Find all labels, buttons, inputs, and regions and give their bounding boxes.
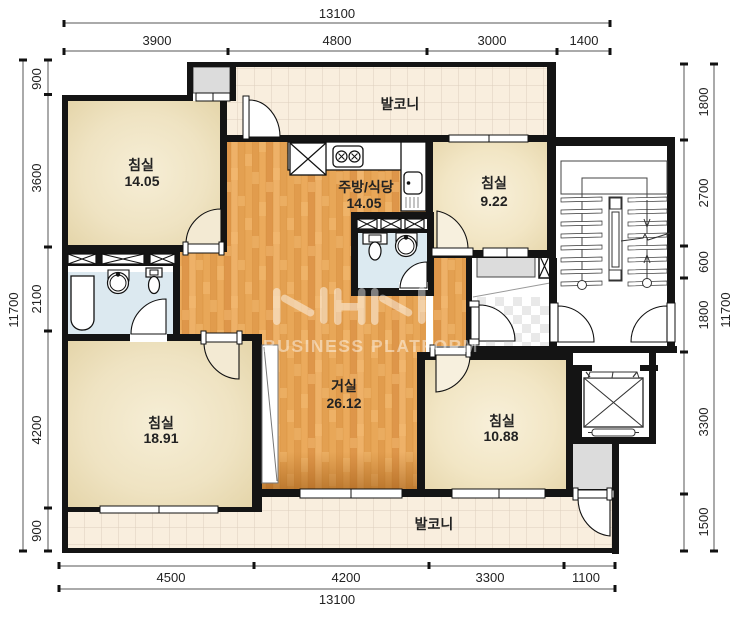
svg-text:침실: 침실 [481,175,507,191]
svg-text:14.05: 14.05 [346,195,381,211]
svg-text:침실: 침실 [148,415,174,431]
svg-text:900: 900 [29,520,44,542]
svg-text:3900: 3900 [143,33,172,48]
svg-text:26.12: 26.12 [326,395,361,411]
svg-text:9.22: 9.22 [480,193,507,209]
svg-text:3000: 3000 [478,33,507,48]
svg-text:발코니: 발코니 [415,516,454,532]
svg-text:2100: 2100 [29,285,44,314]
svg-text:900: 900 [29,68,44,90]
svg-text:4200: 4200 [332,570,361,585]
svg-text:거실: 거실 [331,378,357,394]
svg-text:14.05: 14.05 [124,173,159,189]
svg-text:11700: 11700 [718,292,733,327]
svg-text:3300: 3300 [696,408,711,437]
svg-text:600: 600 [696,251,711,273]
svg-text:주방/식당: 주방/식당 [338,179,394,195]
svg-text:침실: 침실 [489,413,515,429]
svg-text:3600: 3600 [29,164,44,193]
svg-text:1800: 1800 [696,301,711,330]
svg-text:2700: 2700 [696,179,711,208]
svg-text:BUSINESS PLATFORM: BUSINESS PLATFORM [263,336,479,356]
svg-text:발코니: 발코니 [381,96,420,112]
svg-text:1500: 1500 [696,508,711,537]
svg-text:3300: 3300 [476,570,505,585]
svg-text:13100: 13100 [319,592,355,607]
svg-text:4500: 4500 [157,570,186,585]
svg-text:13100: 13100 [319,6,355,21]
svg-text:4200: 4200 [29,416,44,445]
svg-text:1400: 1400 [570,33,599,48]
svg-text:1100: 1100 [572,570,600,585]
svg-text:침실: 침실 [128,157,154,173]
svg-text:4800: 4800 [323,33,352,48]
svg-text:1800: 1800 [696,88,711,117]
svg-text:18.91: 18.91 [143,430,178,446]
svg-text:11700: 11700 [6,292,21,327]
svg-text:10.88: 10.88 [483,428,518,444]
